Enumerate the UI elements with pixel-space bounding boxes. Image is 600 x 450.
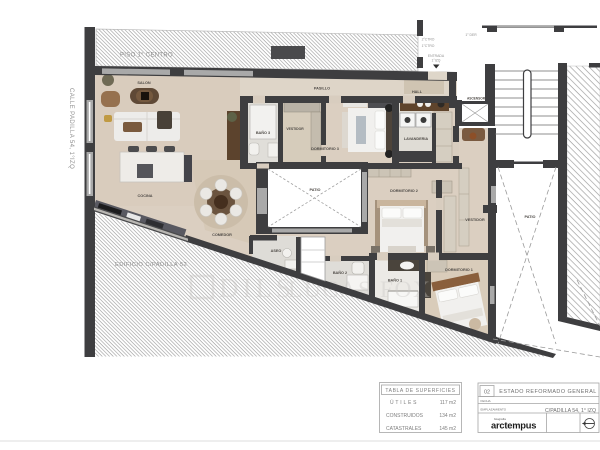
- svg-text:CONSTRUIDOS: CONSTRUIDOS: [386, 413, 424, 419]
- svg-text:PATIO: PATIO: [524, 215, 535, 219]
- svg-text:HALL: HALL: [412, 90, 423, 94]
- svg-text:FECHA: FECHA: [481, 399, 491, 403]
- svg-text:1° DER: 1° DER: [465, 33, 477, 37]
- svg-text:ÚTILES: ÚTILES: [390, 399, 418, 406]
- svg-text:PASILLO: PASILLO: [314, 87, 330, 91]
- svg-text:2°CTRO: 2°CTRO: [422, 38, 435, 42]
- svg-text:BAÑO 1: BAÑO 1: [388, 278, 402, 283]
- svg-text:134 m2: 134 m2: [439, 413, 456, 419]
- svg-text:CALLE PADILLA 54, 1°IZQ: CALLE PADILLA 54, 1°IZQ: [68, 88, 74, 169]
- svg-text:VESTIDOR: VESTIDOR: [465, 218, 485, 222]
- svg-text:ESTADO REFORMADO GENERAL: ESTADO REFORMADO GENERAL: [499, 389, 597, 395]
- svg-text:DILS: DILS: [219, 273, 295, 303]
- svg-text:PISO 1° CENTRO: PISO 1° CENTRO: [120, 53, 173, 59]
- svg-text:EDIFICIO C/PADILLA 52: EDIFICIO C/PADILLA 52: [115, 262, 187, 268]
- svg-text:ASCENSOR: ASCENSOR: [467, 97, 486, 101]
- svg-text:COCINA: COCINA: [138, 194, 153, 198]
- svg-text:02: 02: [484, 390, 490, 396]
- svg-text:TABLA DE SUPERFICIES: TABLA DE SUPERFICIES: [385, 388, 455, 394]
- svg-text:ENTRADA: ENTRADA: [428, 54, 445, 58]
- svg-text:CATASTRALES: CATASTRALES: [386, 426, 422, 432]
- svg-text:DORMITORIO 3: DORMITORIO 3: [311, 147, 339, 151]
- svg-text:117 m2: 117 m2: [440, 400, 457, 406]
- svg-text:PATIO: PATIO: [309, 188, 320, 192]
- svg-text:VESTIDOR: VESTIDOR: [286, 127, 304, 131]
- svg-text:ASEO: ASEO: [271, 249, 282, 253]
- svg-text:LAVANDERIA: LAVANDERIA: [404, 137, 429, 141]
- svg-text:BAÑO 3: BAÑO 3: [256, 130, 270, 135]
- svg-text:BAÑO 2: BAÑO 2: [333, 270, 347, 275]
- svg-text:EMPLAZAMIENTO: EMPLAZAMIENTO: [481, 408, 507, 412]
- svg-text:145 m2: 145 m2: [439, 426, 456, 432]
- svg-text:DORMITORIO 2: DORMITORIO 2: [390, 189, 418, 193]
- svg-text:C/PADILLA 54, 1° IZQ: C/PADILLA 54, 1° IZQ: [545, 408, 596, 414]
- svg-text:arctempus: arctempus: [491, 421, 536, 431]
- svg-text:COMEDOR: COMEDOR: [212, 233, 232, 237]
- svg-text:SALON: SALON: [137, 81, 151, 85]
- svg-text:DORMITORIO 1: DORMITORIO 1: [445, 268, 473, 272]
- svg-text:1°CTRO: 1°CTRO: [422, 44, 435, 48]
- svg-text:1°IZQ: 1°IZQ: [432, 59, 441, 63]
